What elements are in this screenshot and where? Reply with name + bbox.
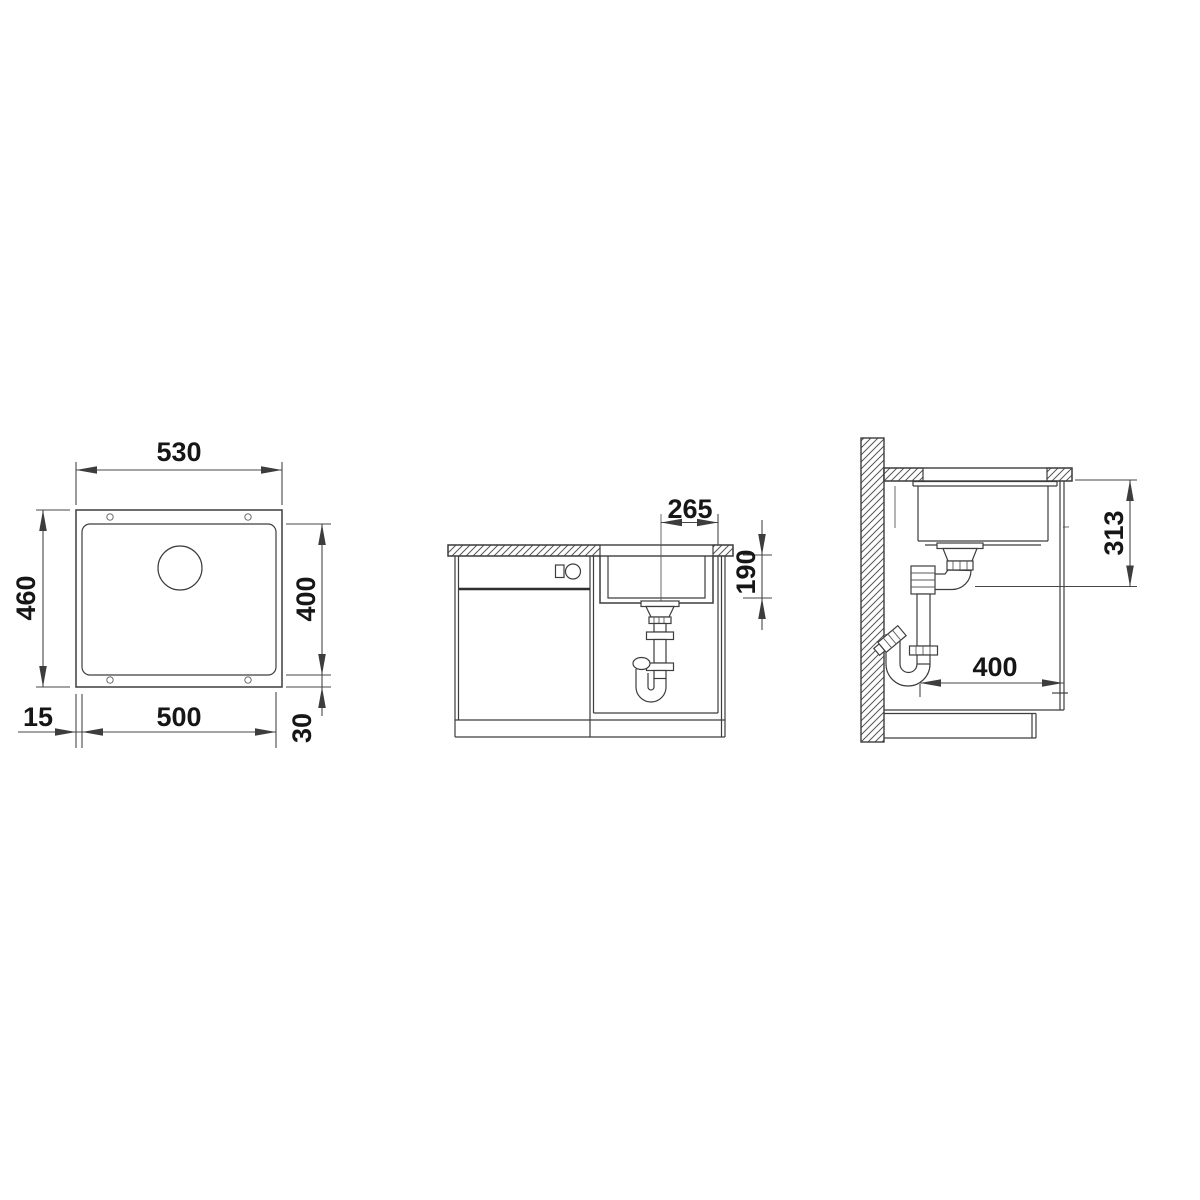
arrowhead — [255, 728, 276, 736]
mounting-hole — [245, 677, 251, 683]
arrowhead — [318, 687, 326, 708]
waste-pipe — [917, 594, 930, 646]
bowl-inner-outline — [82, 524, 276, 675]
dim-label-clearance-depth: 400 — [972, 652, 1017, 682]
dim-label-outer-width: 530 — [156, 437, 201, 467]
strainer-flange — [641, 601, 679, 607]
strainer-flange — [937, 543, 983, 549]
arrowhead — [318, 524, 326, 545]
side-view: 313 400 — [861, 438, 1137, 742]
pipe-coupling — [647, 632, 674, 640]
bowl-inner-section — [608, 556, 705, 598]
arrowhead — [82, 728, 103, 736]
arrowhead — [39, 510, 47, 531]
arrowhead — [1126, 566, 1134, 587]
control-panel-knob — [566, 564, 581, 579]
wall-section — [861, 438, 884, 742]
dim-label-outer-depth: 460 — [11, 575, 41, 620]
mounting-hole — [245, 514, 251, 520]
bowl-outer-section — [600, 556, 713, 603]
dim-label-rim-bottom: 30 — [287, 713, 317, 743]
cabinet-divider — [590, 556, 594, 737]
tailpipe — [654, 640, 666, 664]
drain-elbow — [933, 570, 971, 590]
front-view: 265 190 — [448, 494, 772, 737]
control-panel-switch — [556, 565, 565, 578]
arrowhead — [55, 728, 76, 736]
strainer-cup — [646, 607, 674, 618]
dim-label-drain-offset: 265 — [667, 494, 712, 524]
strainer-cup — [943, 549, 977, 562]
cabinet-front — [1060, 482, 1064, 711]
extension-lines-530 — [76, 462, 282, 505]
p-trap-inner — [648, 673, 654, 690]
plan-view: 530 460 400 15 500 30 — [11, 437, 331, 748]
dim-label-drain-height: 313 — [1099, 510, 1129, 555]
cabinet-right-wall — [718, 556, 725, 737]
worktop-hatch-right — [713, 545, 733, 556]
drain-hole — [158, 546, 202, 590]
worktop-hatch-left — [448, 545, 600, 556]
mounting-hole — [107, 514, 113, 520]
dim-label-bowl-width: 500 — [156, 702, 201, 732]
plinth-recess — [884, 714, 1036, 739]
pipe-coupling — [910, 646, 938, 655]
arrowhead — [261, 466, 282, 474]
mounting-hole — [107, 677, 113, 683]
sink-outer-outline — [76, 510, 282, 687]
arrowhead — [39, 666, 47, 687]
worktop-hatch-back — [884, 468, 923, 481]
tailpipe — [654, 671, 666, 679]
waste-pipe — [917, 655, 930, 664]
strainer-nut — [649, 617, 671, 624]
sink-rim-section — [913, 482, 1057, 487]
tailpipe — [654, 624, 666, 633]
trap-cleanout-cap — [633, 658, 650, 670]
extension-lines-460 — [36, 510, 70, 687]
dim-label-bowl-depth: 400 — [291, 576, 321, 621]
technical-drawing: 530 460 400 15 500 30 — [0, 0, 1200, 1200]
worktop-hatch-front — [1047, 468, 1072, 481]
arrowhead — [76, 466, 97, 474]
arrowhead — [758, 598, 766, 619]
arrowhead — [318, 654, 326, 675]
arrowhead — [1126, 480, 1134, 501]
dim-label-front-bowl-depth: 190 — [731, 549, 761, 594]
cabinet-left-wall — [455, 556, 459, 737]
drawing-canvas: 530 460 400 15 500 30 — [0, 0, 1200, 1200]
bowl-side-section — [918, 486, 1048, 545]
dim-label-rim-left: 15 — [23, 702, 53, 732]
